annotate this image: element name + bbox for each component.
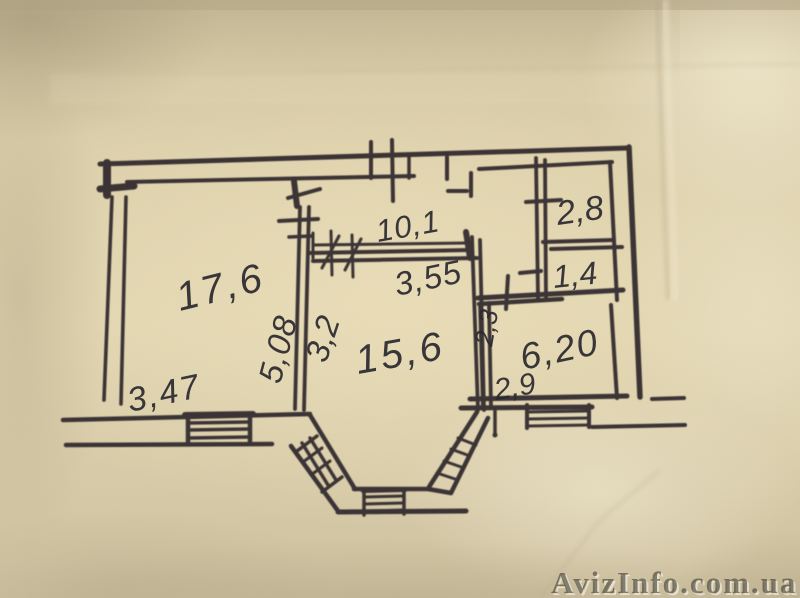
svg-text:2,8: 2,8 <box>553 189 606 233</box>
svg-text:1,4: 1,4 <box>551 255 599 295</box>
svg-text:AvizInfo.com.ua: AvizInfo.com.ua <box>551 565 797 598</box>
